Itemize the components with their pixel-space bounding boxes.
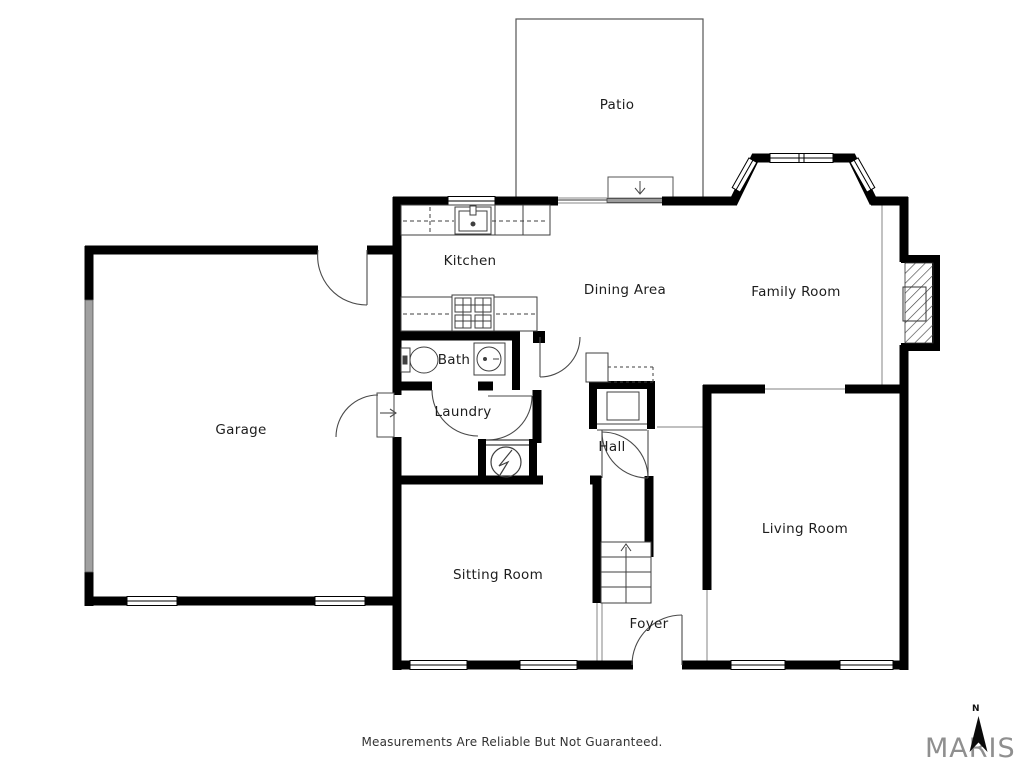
sitting-room-window xyxy=(410,661,467,670)
bath-sink-icon xyxy=(474,343,505,375)
room-label-living-room: Living Room xyxy=(762,521,848,537)
door-swing-garage-entry xyxy=(336,393,396,437)
water-heater-icon xyxy=(486,440,529,477)
hall-closet xyxy=(597,392,647,430)
door-swing-dining xyxy=(540,337,580,377)
sitting-room-window xyxy=(520,661,577,670)
room-label-kitchen: Kitchen xyxy=(444,253,497,269)
wall-stub xyxy=(533,331,545,343)
garage-door xyxy=(85,300,93,572)
room-label-dining-area: Dining Area xyxy=(584,282,666,298)
room-label-laundry: Laundry xyxy=(434,404,491,420)
stairs-icon xyxy=(601,542,651,603)
compass-north-label: N xyxy=(972,704,980,714)
fireplace-icon xyxy=(903,263,933,343)
room-label-family-room: Family Room xyxy=(751,284,840,300)
living-room-window xyxy=(731,661,785,670)
room-label-hall: Hall xyxy=(598,439,625,455)
garage-window xyxy=(127,597,177,606)
toilet-icon xyxy=(401,347,438,373)
kitchen-sink-icon xyxy=(455,206,491,234)
garage-window xyxy=(315,597,365,606)
door-swing-garage-top xyxy=(318,250,367,305)
floor-plan-drawing xyxy=(0,0,1024,768)
room-label-patio: Patio xyxy=(600,97,635,113)
door-swing-laundry-right xyxy=(488,396,532,440)
kitchen-window xyxy=(448,197,495,206)
refrigerator-icon xyxy=(586,353,653,382)
disclaimer-text: Measurements Are Reliable But Not Guaran… xyxy=(0,735,1024,749)
room-label-bath: Bath xyxy=(438,352,471,368)
room-label-sitting-room: Sitting Room xyxy=(453,567,543,583)
room-label-foyer: Foyer xyxy=(630,616,669,632)
stove-icon xyxy=(452,295,494,331)
floor-plan-page: Patio Kitchen Dining Area Family Room Ga… xyxy=(0,0,1024,768)
room-label-garage: Garage xyxy=(215,422,266,438)
living-room-window xyxy=(840,661,893,670)
